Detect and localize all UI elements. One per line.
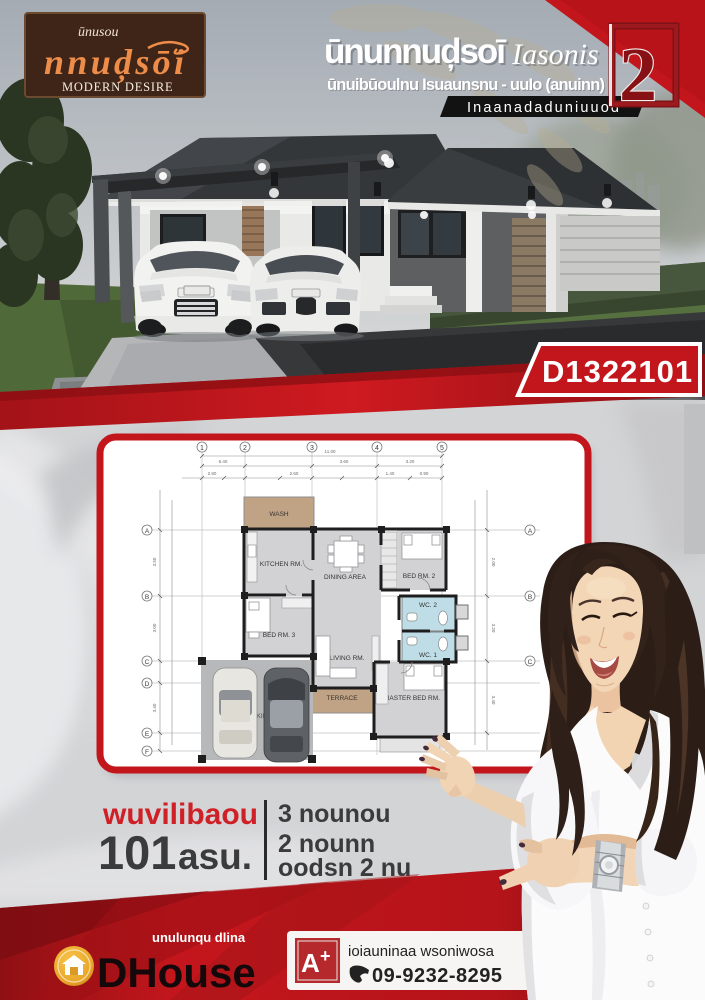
svg-text:F: F: [145, 749, 149, 756]
svg-text:11.00: 11.00: [325, 449, 336, 454]
svg-text:09-9232-8295: 09-9232-8295: [372, 965, 503, 987]
svg-text:3.00: 3.00: [152, 623, 157, 632]
svg-text:2.60: 2.60: [290, 471, 299, 476]
svg-text:BED RM. 3: BED RM. 3: [263, 632, 296, 639]
svg-text:1: 1: [200, 445, 204, 452]
svg-text:ūnusou: ūnusou: [78, 25, 118, 40]
svg-text:2: 2: [243, 445, 247, 452]
svg-text:C: C: [145, 659, 150, 666]
svg-text:TERRACE: TERRACE: [326, 695, 358, 702]
svg-text:ioiauninaa wsoniwosa: ioiauninaa wsoniwosa: [348, 943, 495, 960]
svg-text:3 nounou: 3 nounou: [278, 800, 390, 828]
svg-text:DINING AREA: DINING AREA: [324, 574, 367, 581]
svg-text:WC. 2: WC. 2: [419, 602, 437, 609]
svg-text:E: E: [145, 731, 150, 738]
svg-text:3.40: 3.40: [491, 696, 496, 705]
svg-text:DHouse: DHouse: [97, 949, 256, 996]
svg-text:B: B: [528, 594, 532, 601]
svg-text:5.40: 5.40: [219, 459, 228, 464]
svg-text:D1322101: D1322101: [542, 354, 693, 389]
svg-text:2: 2: [619, 33, 657, 117]
svg-text:3.40: 3.40: [152, 703, 157, 712]
svg-text:1.40: 1.40: [386, 471, 395, 476]
svg-text:ūnuibūoulnu Isuaunsnu - uuIo (: ūnuibūoulnu Isuaunsnu - uuIo (anuinn): [327, 76, 605, 94]
svg-text:unulunqu dlina: unulunqu dlina: [152, 930, 246, 945]
svg-text:2.00: 2.00: [491, 558, 496, 567]
svg-text:LIVING RM.: LIVING RM.: [329, 655, 364, 662]
svg-text:A: A: [145, 528, 150, 535]
svg-text:3.60: 3.60: [340, 459, 349, 464]
svg-text:C: C: [528, 659, 533, 666]
svg-text:3.20: 3.20: [406, 459, 415, 464]
svg-text:B: B: [145, 594, 149, 601]
svg-text:3.20: 3.20: [491, 624, 496, 633]
svg-text:WASH: WASH: [269, 511, 289, 518]
svg-text:3: 3: [310, 445, 314, 452]
svg-text:MASTER BED RM.: MASTER BED RM.: [384, 695, 440, 702]
svg-text:A: A: [528, 528, 533, 535]
svg-text:D: D: [145, 681, 150, 688]
svg-text:101: 101: [98, 826, 176, 879]
svg-text:asu.: asu.: [178, 836, 252, 877]
svg-text:Iasonis: Iasonis: [511, 38, 599, 71]
svg-text:BED RM. 2: BED RM. 2: [403, 573, 436, 580]
svg-text:2.80: 2.80: [208, 471, 217, 476]
svg-text:ūnunnuḑsoī: ūnunnuḑsoī: [324, 32, 507, 71]
svg-text:5: 5: [440, 445, 444, 452]
svg-text:0.90: 0.90: [420, 471, 429, 476]
svg-text:3.50: 3.50: [152, 557, 157, 566]
svg-text:4: 4: [375, 445, 379, 452]
svg-text:A: A: [301, 948, 320, 978]
svg-text:MODERN DESIRE: MODERN DESIRE: [62, 80, 173, 94]
svg-text:WC. 1: WC. 1: [419, 652, 437, 659]
svg-text:KITCHEN RM.: KITCHEN RM.: [260, 561, 302, 568]
svg-text:+: +: [320, 946, 331, 966]
